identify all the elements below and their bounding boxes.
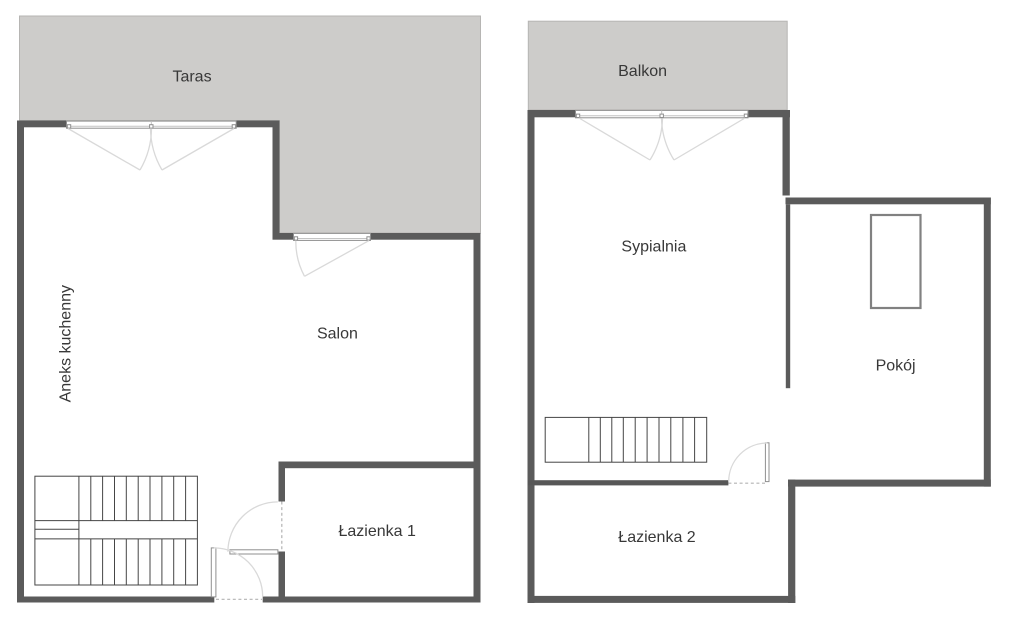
- svg-text:Łazienka 2: Łazienka 2: [618, 529, 695, 546]
- svg-text:Pokój: Pokój: [876, 358, 916, 375]
- svg-text:Taras: Taras: [172, 68, 211, 85]
- svg-text:Sypialnia: Sypialnia: [621, 239, 686, 256]
- svg-text:Łazienka 1: Łazienka 1: [339, 523, 416, 540]
- svg-text:Balkon: Balkon: [618, 63, 667, 80]
- svg-text:Salon: Salon: [317, 326, 358, 343]
- svg-text:Aneks kuchenny: Aneks kuchenny: [58, 285, 75, 402]
